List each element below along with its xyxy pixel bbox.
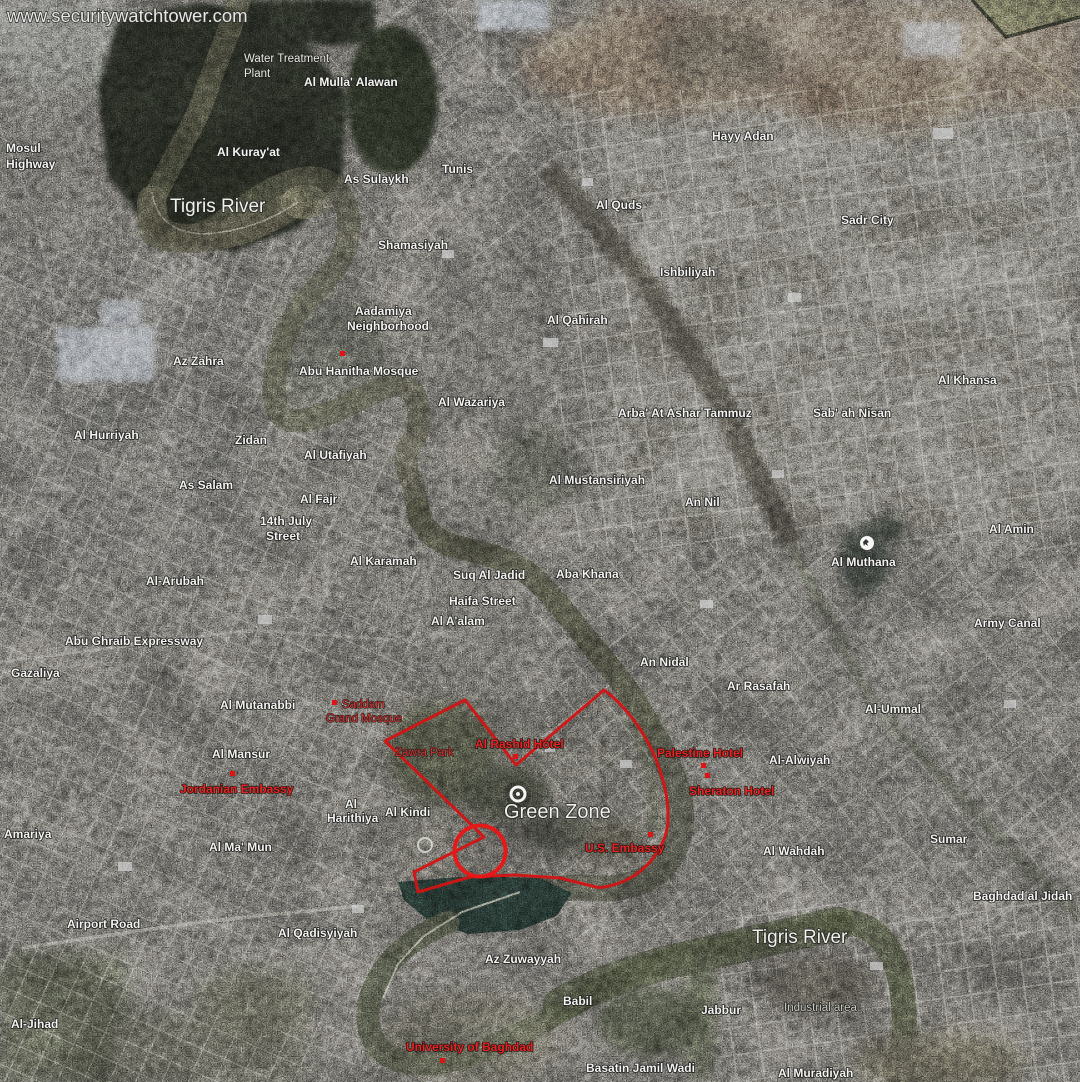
svg-text:Palestine Hotel: Palestine Hotel [657, 746, 743, 760]
svg-text:Al Utafiyah: Al Utafiyah [304, 448, 367, 462]
svg-text:Airport Road: Airport Road [67, 917, 140, 931]
svg-text:Al Mustansiriyah: Al Mustansiriyah [549, 473, 645, 487]
svg-text:14th July: 14th July [260, 514, 312, 528]
svg-text:Abu Hanitha Mosque: Abu Hanitha Mosque [299, 364, 419, 378]
svg-text:U.S. Embassy: U.S. Embassy [585, 841, 665, 855]
svg-text:Sab' ah Nisan: Sab' ah Nisan [813, 406, 891, 420]
svg-text:Sadr City: Sadr City [841, 213, 894, 227]
svg-text:Tigris River: Tigris River [752, 927, 848, 948]
svg-text:Haifa Street: Haifa Street [449, 594, 516, 608]
svg-text:Baghdad al Jidah: Baghdad al Jidah [973, 889, 1072, 903]
svg-text:Zawra Park: Zawra Park [395, 747, 454, 759]
svg-text:Aba Khana: Aba Khana [556, 567, 619, 581]
svg-text:Harithiya: Harithiya [327, 811, 379, 825]
svg-text:Mosul: Mosul [6, 141, 41, 155]
svg-text:Army Canal: Army Canal [974, 616, 1041, 630]
svg-text:An Nil: An Nil [685, 495, 720, 509]
svg-text:Al Muthana: Al Muthana [831, 555, 896, 569]
svg-text:Al Mulla' Alawan: Al Mulla' Alawan [304, 75, 398, 89]
svg-text:As Salam: As Salam [179, 478, 233, 492]
svg-text:Aadamiya: Aadamiya [355, 304, 412, 318]
svg-text:Al Rashid Hotel: Al Rashid Hotel [475, 737, 564, 751]
svg-text:Al Wahdah: Al Wahdah [763, 844, 825, 858]
svg-text:Al Ma' Mun: Al Ma' Mun [209, 840, 272, 854]
svg-text:Shamasiyah: Shamasiyah [378, 238, 448, 252]
svg-text:Basatin Jamil Wadi: Basatin Jamil Wadi [586, 1061, 695, 1075]
svg-text:Al-Ummal: Al-Ummal [865, 702, 921, 716]
svg-text:Al-Arubah: Al-Arubah [146, 574, 204, 588]
svg-text:Al Hurriyah: Al Hurriyah [74, 428, 139, 442]
svg-text:Green Zone: Green Zone [504, 801, 611, 823]
svg-text:Grand Mosque: Grand Mosque [326, 713, 402, 725]
svg-text:Al Fajr: Al Fajr [300, 492, 338, 506]
svg-text:Ishbiliyah: Ishbiliyah [660, 265, 715, 279]
svg-text:Al: Al [345, 797, 357, 811]
svg-text:Industrial area: Industrial area [784, 1002, 857, 1014]
svg-text:Highway: Highway [6, 157, 56, 171]
svg-text:Al Karamah: Al Karamah [350, 554, 417, 568]
svg-text:Al Wazariya: Al Wazariya [438, 395, 505, 409]
svg-text:An Nidal: An Nidal [640, 655, 689, 669]
svg-text:Ar Rasafah: Ar Rasafah [727, 679, 790, 693]
svg-text:Jabbur: Jabbur [701, 1003, 741, 1017]
svg-text:Al Khansa: Al Khansa [938, 373, 997, 387]
svg-text:Gazaliya: Gazaliya [11, 666, 60, 680]
svg-text:Al Kindi: Al Kindi [385, 805, 430, 819]
svg-text:Sumar: Sumar [930, 832, 968, 846]
svg-text:Al Quds: Al Quds [596, 198, 642, 212]
svg-text:Az Zuwayyah: Az Zuwayyah [485, 952, 561, 966]
svg-text:Al A'alam: Al A'alam [431, 614, 485, 628]
svg-text:Abu Ghraib Expressway: Abu Ghraib Expressway [65, 634, 203, 648]
svg-text:Tigris River: Tigris River [170, 196, 266, 217]
svg-text:Al Mutanabbi: Al Mutanabbi [220, 698, 295, 712]
svg-text:Jordanian Embassy: Jordanian Embassy [180, 782, 294, 796]
svg-text:Zidan: Zidan [235, 433, 267, 447]
svg-text:Al Kuray'at: Al Kuray'at [217, 145, 280, 159]
svg-text:Al-Alwiyah: Al-Alwiyah [769, 753, 830, 767]
svg-text:Al Qahirah: Al Qahirah [547, 313, 608, 327]
svg-text:Al Amin: Al Amin [989, 522, 1034, 536]
svg-text:Az Zahra: Az Zahra [173, 354, 224, 368]
svg-text:Arba' At Ashar Tammuz: Arba' At Ashar Tammuz [618, 406, 752, 420]
svg-text:Street: Street [266, 529, 300, 543]
svg-text:Al Mansur: Al Mansur [212, 747, 270, 761]
svg-text:Hayy Adan: Hayy Adan [712, 129, 774, 143]
svg-text:As Sulaykh: As Sulaykh [344, 172, 409, 186]
svg-text:Suq Al Jadid: Suq Al Jadid [453, 568, 525, 582]
svg-text:Al-Jihad: Al-Jihad [11, 1017, 58, 1031]
svg-text:Al Qadisyiyah: Al Qadisyiyah [278, 926, 357, 940]
svg-text:Al Muradiyah: Al Muradiyah [778, 1066, 853, 1080]
svg-text:Babil: Babil [563, 994, 592, 1008]
svg-text:Tunis: Tunis [442, 162, 473, 176]
svg-text:University of Baghdad: University of Baghdad [406, 1040, 533, 1054]
svg-text:www.securitywatchtower.com: www.securitywatchtower.com [6, 5, 248, 26]
svg-text:Water Treatment: Water Treatment [244, 53, 330, 65]
svg-text:Plant: Plant [244, 68, 271, 80]
svg-text:Amariya: Amariya [4, 827, 52, 841]
svg-text:Sheraton Hotel: Sheraton Hotel [689, 784, 774, 798]
svg-text:Neighborhood: Neighborhood [347, 319, 429, 333]
svg-text:Saddam: Saddam [342, 699, 385, 711]
